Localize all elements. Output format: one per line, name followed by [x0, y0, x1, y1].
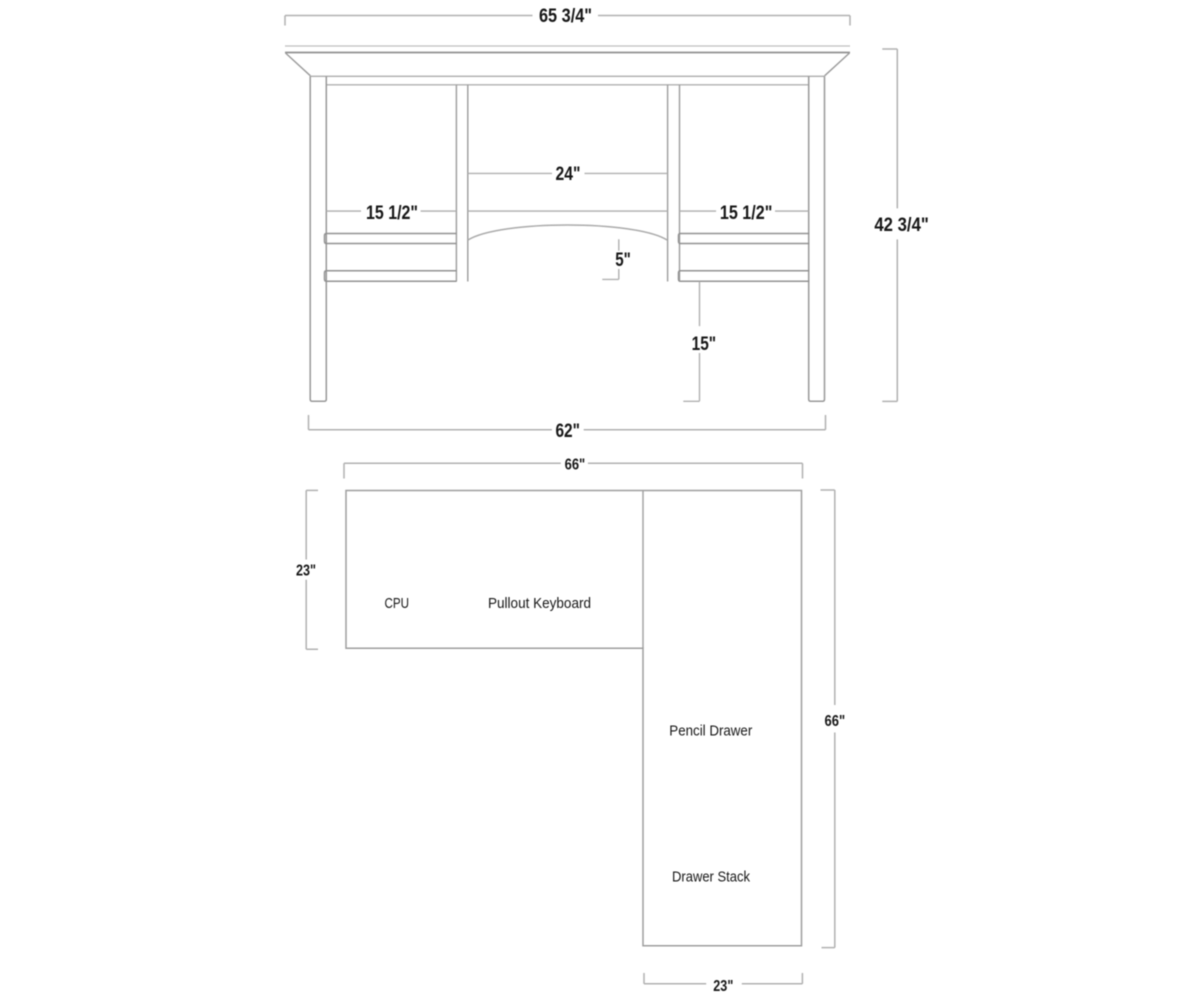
- svg-text:Pullout Keyboard: Pullout Keyboard: [488, 595, 591, 612]
- svg-text:Drawer Stack: Drawer Stack: [672, 868, 750, 885]
- svg-text:65 3/4": 65 3/4": [539, 6, 592, 27]
- svg-text:23": 23": [296, 563, 316, 580]
- svg-text:62": 62": [555, 421, 580, 442]
- svg-text:24": 24": [556, 164, 581, 185]
- svg-text:66": 66": [825, 713, 846, 730]
- svg-text:5": 5": [615, 250, 631, 271]
- svg-text:42 3/4": 42 3/4": [874, 215, 928, 236]
- svg-text:15 1/2": 15 1/2": [366, 203, 418, 224]
- svg-text:66": 66": [565, 457, 586, 474]
- svg-text:CPU: CPU: [385, 595, 410, 612]
- svg-text:15": 15": [692, 334, 717, 355]
- svg-text:Pencil Drawer: Pencil Drawer: [669, 723, 752, 740]
- svg-text:15 1/2": 15 1/2": [720, 203, 773, 224]
- svg-text:23": 23": [713, 978, 733, 995]
